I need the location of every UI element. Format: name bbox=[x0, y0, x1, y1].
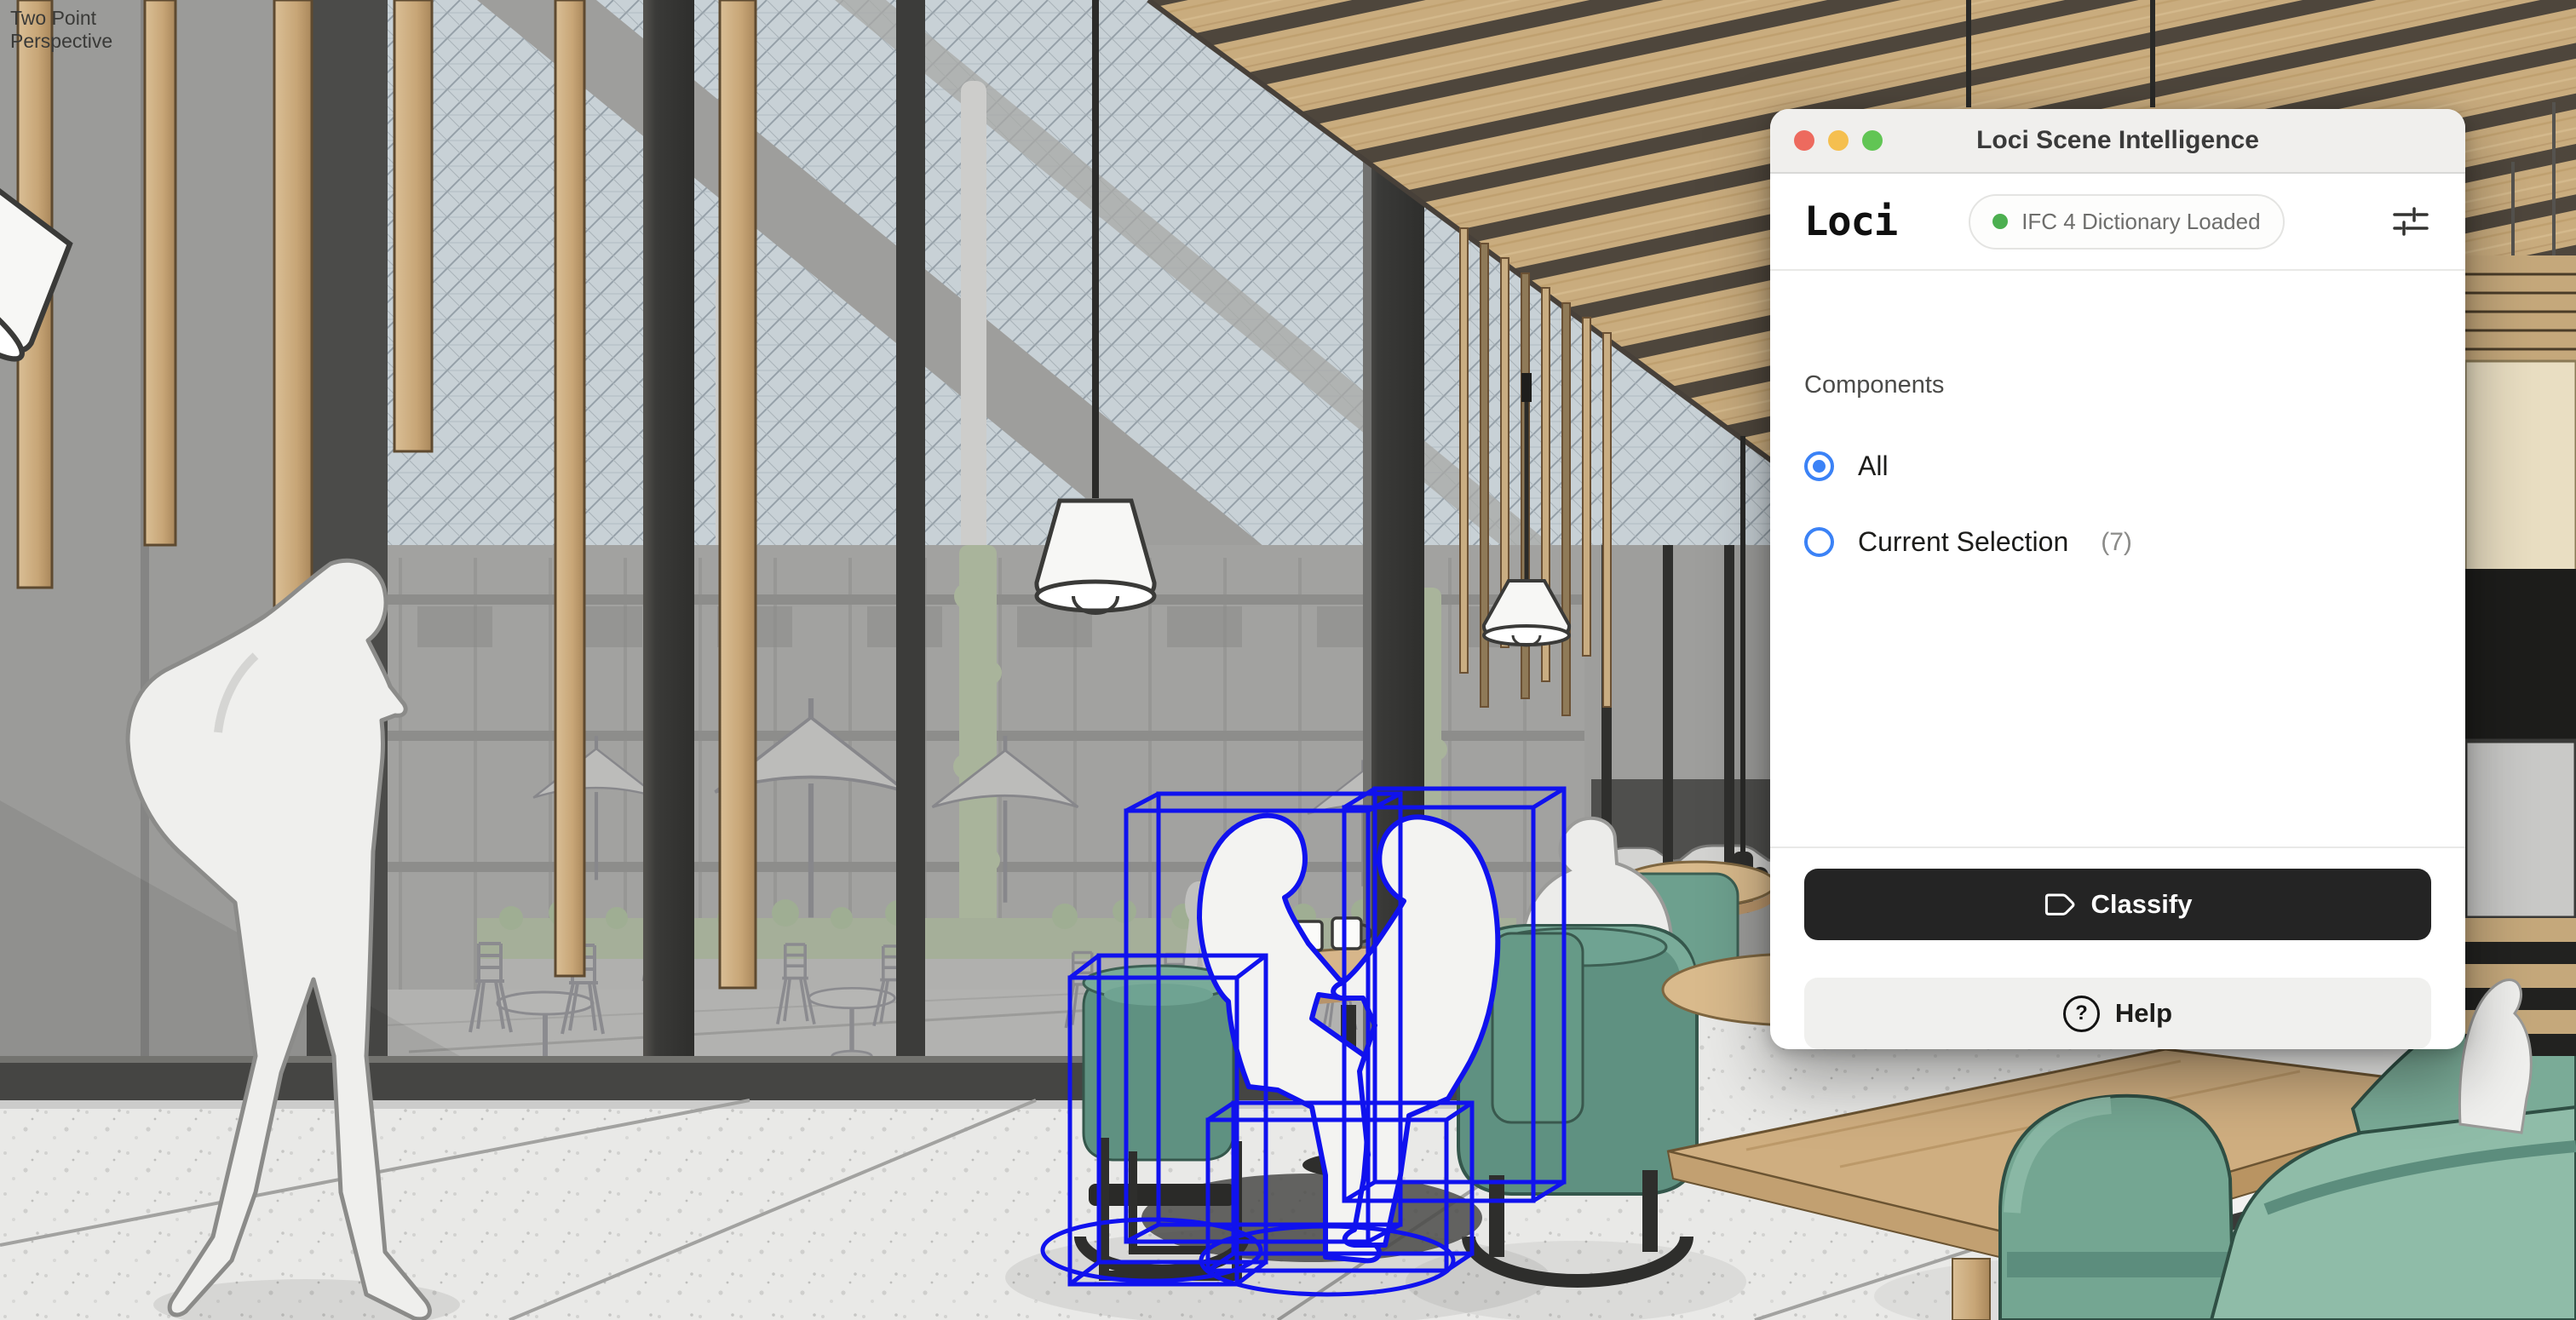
help-button[interactable]: ? Help bbox=[1804, 978, 2431, 1049]
help-label: Help bbox=[2115, 998, 2172, 1029]
right-wall-structure bbox=[2459, 255, 2576, 1133]
status-text: IFC 4 Dictionary Loaded bbox=[2021, 209, 2260, 235]
status-dot-icon bbox=[1992, 214, 2008, 229]
loci-window: Loci Scene Intelligence Loci IFC 4 Dicti… bbox=[1770, 109, 2465, 1049]
radio-option-all[interactable]: All bbox=[1804, 451, 2431, 482]
radio-selected-icon bbox=[1804, 451, 1834, 481]
perspective-label: Two Point Perspective bbox=[10, 7, 112, 53]
radio-label-all: All bbox=[1858, 451, 1889, 482]
radio-label-current-selection: Current Selection bbox=[1858, 526, 2068, 558]
radio-option-current-selection[interactable]: Current Selection (7) bbox=[1804, 526, 2431, 558]
settings-button[interactable] bbox=[2390, 201, 2431, 242]
components-label: Components bbox=[1804, 371, 2431, 399]
panel-footer: Classify ? Help bbox=[1770, 847, 2465, 1049]
sketchup-app: Two Point Perspective Loci Scene Intelli… bbox=[0, 0, 2576, 1320]
classify-button[interactable]: Classify bbox=[1804, 869, 2431, 940]
classify-label: Classify bbox=[2091, 889, 2193, 920]
window-title: Loci Scene Intelligence bbox=[1770, 109, 2465, 172]
sliders-icon bbox=[2391, 202, 2430, 241]
panel-body: Components All Current Selection (7) bbox=[1770, 271, 2465, 847]
status-badge: IFC 4 Dictionary Loaded bbox=[1969, 194, 2284, 250]
selection-count: (7) bbox=[2101, 528, 2132, 557]
help-icon: ? bbox=[2063, 996, 2100, 1032]
radio-unselected-icon bbox=[1804, 527, 1834, 557]
tag-icon bbox=[2044, 892, 2076, 917]
green-chair-bottom-right bbox=[2000, 1096, 2234, 1320]
window-titlebar[interactable]: Loci Scene Intelligence bbox=[1770, 109, 2465, 174]
loci-logo: Loci bbox=[1804, 198, 1897, 245]
green-chair-behind bbox=[1492, 933, 1583, 1122]
panel-header: Loci IFC 4 Dictionary Loaded bbox=[1770, 174, 2465, 271]
